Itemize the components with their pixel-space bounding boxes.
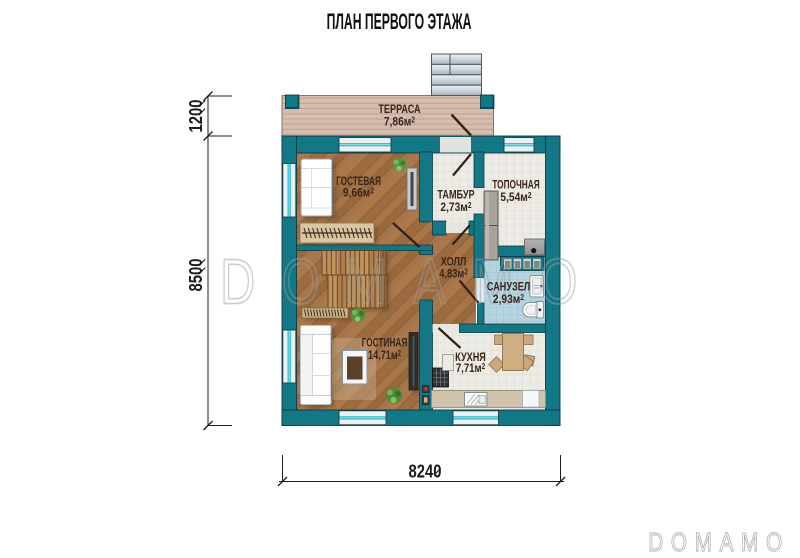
svg-text:4,83м2: 4,83м2: [439, 267, 468, 280]
svg-text:2,93м2: 2,93м2: [493, 292, 524, 306]
svg-text:DOMAMO: DOMAMO: [648, 528, 789, 557]
svg-text:DOMAMO: DOMAMO: [220, 247, 604, 318]
svg-text:7,71м2: 7,71м2: [456, 361, 485, 375]
svg-text:9,66м2: 9,66м2: [343, 186, 374, 200]
svg-text:1200: 1200: [185, 100, 206, 133]
svg-text:ПЛАН ПЕРВОГО ЭТАЖА: ПЛАН ПЕРВОГО ЭТАЖА: [327, 9, 472, 34]
svg-text:2,73м2: 2,73м2: [440, 200, 471, 214]
svg-text:7,86м2: 7,86м2: [384, 115, 415, 129]
svg-text:ТОПОЧНАЯ: ТОПОЧНАЯ: [492, 179, 539, 192]
svg-text:8240: 8240: [409, 461, 442, 482]
svg-text:5,54м2: 5,54м2: [500, 190, 531, 204]
svg-text:14,71м2: 14,71м2: [368, 349, 401, 363]
svg-text:8500: 8500: [185, 259, 206, 292]
